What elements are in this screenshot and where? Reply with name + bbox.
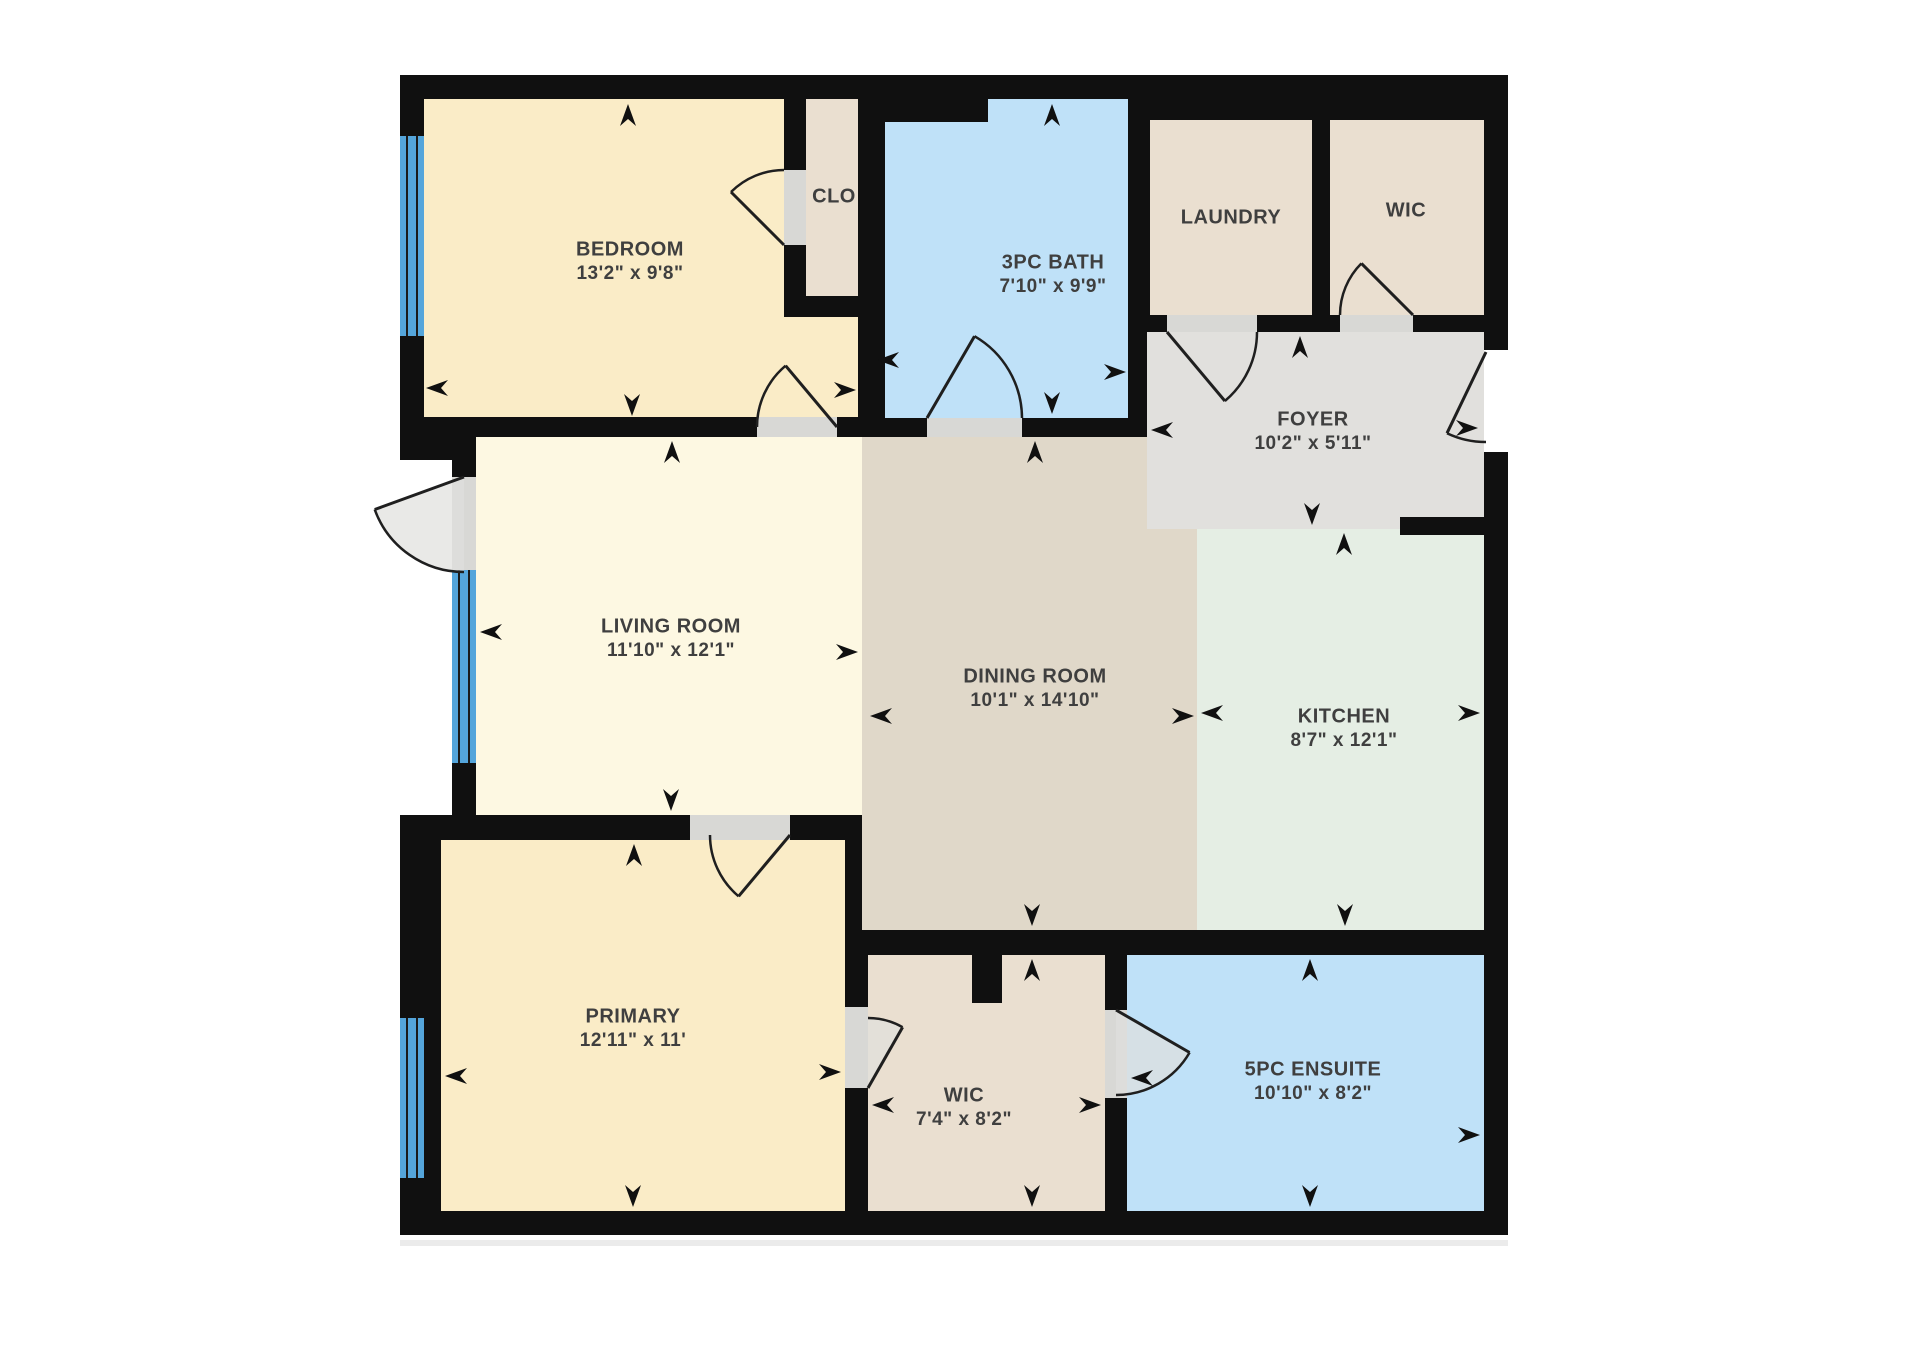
room-foyer	[1147, 332, 1484, 529]
wic-wall-stub	[972, 955, 1002, 1003]
svg-text:CLO: CLO	[812, 185, 856, 207]
svg-text:WIC: WIC	[1386, 199, 1426, 221]
svg-text:7'4" x 8'2": 7'4" x 8'2"	[916, 1109, 1012, 1130]
svg-text:13'2" x 9'8": 13'2" x 9'8"	[576, 263, 683, 284]
closet-door-opening	[784, 170, 806, 245]
svg-text:3PC BATH: 3PC BATH	[1002, 251, 1105, 273]
svg-text:DINING ROOM: DINING ROOM	[963, 665, 1106, 687]
svg-text:5PC ENSUITE: 5PC ENSUITE	[1245, 1058, 1382, 1080]
svg-text:WIC: WIC	[944, 1084, 984, 1106]
plan-shadow	[400, 1240, 1508, 1246]
wic-top-door-opening	[1340, 315, 1413, 332]
svg-text:KITCHEN: KITCHEN	[1298, 705, 1390, 727]
living-window	[452, 570, 476, 763]
svg-text:FOYER: FOYER	[1277, 408, 1348, 430]
svg-text:LAUNDRY: LAUNDRY	[1181, 206, 1282, 228]
laundry-label: LAUNDRY	[1181, 206, 1282, 228]
svg-text:10'1" x 14'10": 10'1" x 14'10"	[970, 690, 1099, 711]
floor-plan: BEDROOM 13'2" x 9'8" CLO 3PC BATH 7'10" …	[0, 0, 1920, 1348]
closet-label: CLO	[812, 185, 856, 207]
primary-wic-door-opening	[845, 1007, 868, 1088]
svg-text:PRIMARY: PRIMARY	[586, 1005, 681, 1027]
primary-door-opening	[690, 815, 790, 840]
entry-opening	[1484, 350, 1508, 452]
svg-text:10'10" x 8'2": 10'10" x 8'2"	[1254, 1083, 1372, 1104]
bath-door-opening	[927, 418, 1022, 437]
svg-text:8'7" x 12'1": 8'7" x 12'1"	[1290, 730, 1397, 751]
svg-text:LIVING ROOM: LIVING ROOM	[601, 615, 741, 637]
wic-top-label: WIC	[1386, 199, 1426, 221]
svg-text:11'10" x 12'1": 11'10" x 12'1"	[607, 640, 735, 661]
laundry-door-opening	[1167, 315, 1257, 332]
svg-text:12'11" x 11': 12'11" x 11'	[580, 1030, 686, 1051]
svg-text:10'2" x 5'11": 10'2" x 5'11"	[1254, 433, 1371, 454]
primary-window	[400, 1018, 424, 1178]
svg-text:7'10" x 9'9": 7'10" x 9'9"	[999, 276, 1106, 297]
svg-text:BEDROOM: BEDROOM	[576, 238, 684, 260]
bedroom-window	[400, 136, 424, 336]
bedroom-door-opening	[757, 417, 837, 437]
foyer-kitchen-wall-stub	[1400, 517, 1484, 535]
